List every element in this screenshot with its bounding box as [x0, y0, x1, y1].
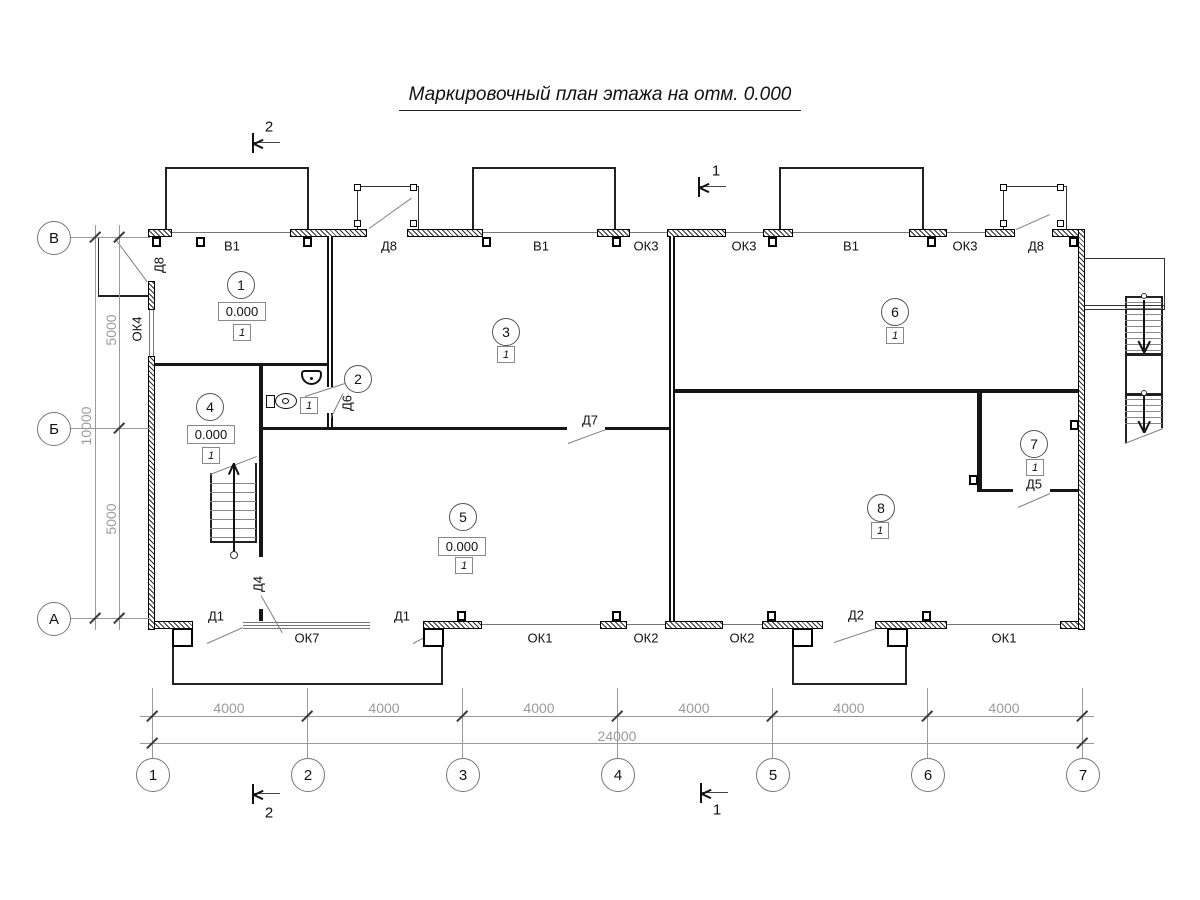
dimension-line: [95, 225, 96, 630]
opening-label: ОК7: [295, 631, 320, 646]
section-arrow-icon: [702, 793, 712, 799]
sink-icon: [310, 377, 313, 380]
finish-type-box: 1: [233, 324, 251, 341]
finish-type: 1: [877, 525, 883, 537]
interior-wall: [327, 236, 333, 387]
interior-wall: [675, 389, 1078, 393]
window-line: [483, 232, 597, 233]
axis-circle: 4: [601, 758, 635, 792]
room-number-circle: 4: [196, 393, 224, 421]
dim-label: 5000: [103, 503, 119, 534]
porch-line: [172, 683, 443, 685]
landing-line: [1085, 258, 1165, 259]
porch-pillar: [172, 628, 193, 647]
opening-label: ОК1: [528, 631, 553, 646]
stair-edge: [1161, 296, 1163, 428]
porch-post: [354, 220, 361, 227]
interior-wall: [155, 363, 332, 366]
window-line: [172, 232, 290, 233]
porch-line: [172, 647, 174, 685]
opening-label: ОК3: [634, 239, 659, 254]
room-number-circle: 6: [881, 298, 909, 326]
exterior-wall-pier: [597, 229, 630, 237]
dim-label: 4000: [368, 700, 399, 716]
axis-number: 7: [1079, 767, 1087, 784]
opening-label: Д8: [152, 257, 167, 273]
dim-label: 4000: [988, 700, 1019, 716]
extension-line: [307, 688, 308, 758]
interior-wall: [259, 366, 263, 557]
canopy-outline: [779, 167, 924, 232]
elevation-value: 0.000: [195, 427, 228, 442]
room-number: 7: [1030, 436, 1038, 452]
exterior-wall-pier: [985, 229, 1015, 237]
axis-circle: 3: [446, 758, 480, 792]
interior-wall-stub: [259, 609, 263, 621]
axis-number: 2: [304, 767, 312, 784]
porch-post: [1000, 220, 1007, 227]
dim-label: 10000: [78, 407, 94, 446]
opening-label: В1: [843, 239, 859, 254]
toilet-icon: [266, 395, 275, 408]
axis-letter: Б: [49, 421, 59, 438]
room-number: 8: [877, 500, 885, 516]
finish-type: 1: [503, 349, 509, 361]
finish-type-box: 1: [202, 447, 220, 464]
section-number: 1: [712, 163, 720, 180]
interior-wall: [605, 427, 669, 430]
jamb-tick: [927, 237, 936, 247]
opening-label: В1: [224, 239, 240, 254]
floor-plan-sheet: Маркировочный план этажа на отм. 0.000: [0, 0, 1200, 900]
porch-line: [905, 647, 907, 685]
room-number: 5: [459, 509, 467, 525]
room-number: 3: [502, 324, 510, 340]
room-number-circle: 1: [227, 271, 255, 299]
canopy-outline: [472, 167, 616, 232]
jamb-tick: [152, 237, 161, 247]
window-line: [947, 232, 985, 233]
stair-arrow-origin: [230, 551, 238, 559]
room-number-circle: 3: [492, 318, 520, 346]
porch-line: [441, 647, 443, 685]
extension-line: [69, 237, 150, 238]
opening-label: Д4: [251, 576, 266, 592]
jamb-tick: [1069, 237, 1078, 247]
interior-wall: [977, 489, 1013, 492]
finish-type: 1: [1032, 462, 1038, 474]
jamb-tick: [767, 611, 776, 621]
finish-type-box: 1: [497, 346, 515, 363]
section-arrow-icon: [254, 143, 264, 149]
axis-number: 1: [149, 767, 157, 784]
opening-label: ОК2: [634, 631, 659, 646]
finish-type-box: 1: [871, 522, 889, 539]
opening-label: ОК1: [992, 631, 1017, 646]
opening-label: Д6: [340, 395, 355, 411]
finish-type: 1: [461, 560, 467, 572]
window-line: [630, 232, 667, 233]
stair-node: [1141, 390, 1147, 396]
elevation-box: 0.000: [438, 537, 486, 556]
extension-line: [772, 688, 773, 758]
room-number-circle: 8: [867, 494, 895, 522]
exterior-wall-pier: [909, 229, 947, 237]
stair-node: [1141, 293, 1147, 299]
dim-label: 4000: [678, 700, 709, 716]
porch-post: [1057, 184, 1064, 191]
exterior-wall-pier: [148, 281, 155, 310]
axis-number: 4: [614, 767, 622, 784]
room-number: 6: [891, 304, 899, 320]
exterior-wall-pier: [1078, 229, 1085, 630]
jamb-tick: [482, 237, 491, 247]
dim-label: 4000: [523, 700, 554, 716]
finish-type-box: 1: [300, 397, 318, 414]
porch-line: [792, 647, 794, 685]
room-number: 4: [206, 399, 214, 415]
jamb-tick: [969, 475, 978, 485]
opening-label: Д8: [1028, 239, 1044, 254]
stair-direction-arrow: [233, 463, 235, 556]
axis-circle: 5: [756, 758, 790, 792]
window-line: [482, 624, 600, 625]
finish-type: 1: [306, 400, 312, 412]
opening-label: Д1: [394, 609, 410, 624]
finish-type-box: 1: [455, 557, 473, 574]
elevation-box: 0.000: [218, 302, 266, 321]
porch-pillar: [887, 628, 908, 647]
exterior-wall-pier: [600, 621, 627, 629]
axis-circle: 2: [291, 758, 325, 792]
jamb-tick: [457, 611, 466, 621]
finish-type: 1: [892, 330, 898, 342]
opening-label: Д7: [582, 413, 598, 428]
exterior-wall-pier: [148, 229, 172, 237]
extension-line: [69, 618, 150, 619]
window-line: [723, 624, 762, 625]
opening-label: Д2: [848, 608, 864, 623]
west-porch-line: [98, 295, 148, 297]
west-porch-line: [98, 237, 99, 297]
room-number: 1: [237, 277, 245, 293]
axis-number: 5: [769, 767, 777, 784]
opening-label: ОК4: [130, 317, 145, 342]
jamb-tick: [768, 237, 777, 247]
dim-label: 4000: [833, 700, 864, 716]
porch-post: [410, 184, 417, 191]
elevation-value: 0.000: [226, 304, 259, 319]
window-line: [153, 310, 154, 356]
opening-label: ОК2: [730, 631, 755, 646]
stair-landing-edge: [1125, 353, 1163, 356]
canopy-outline: [165, 167, 309, 232]
exterior-wall-pier: [148, 356, 155, 630]
jamb-tick: [612, 237, 621, 247]
jamb-tick: [612, 611, 621, 621]
stair-edge: [255, 463, 257, 543]
door-leaf: [834, 628, 876, 643]
axis-number: 6: [924, 767, 932, 784]
opening-label: ОК3: [953, 239, 978, 254]
room-number: 2: [354, 371, 362, 387]
elevation-value: 0.000: [446, 539, 479, 554]
finish-type-box: 1: [1026, 459, 1044, 476]
room-number-circle: 2: [344, 365, 372, 393]
jamb-tick: [303, 237, 312, 247]
drawing-title: Маркировочный план этажа на отм. 0.000: [399, 84, 802, 111]
porch-post: [354, 184, 361, 191]
window-line: [793, 232, 909, 233]
section-number: 1: [713, 802, 721, 819]
finish-type: 1: [239, 327, 245, 339]
finish-type-box: 1: [886, 327, 904, 344]
opening-label: Д8: [381, 239, 397, 254]
door-leaf: [568, 429, 606, 444]
elevation-box: 0.000: [187, 425, 235, 444]
porch-post: [410, 220, 417, 227]
door-leaf: [207, 627, 243, 644]
axis-circle: В: [37, 221, 71, 255]
opening-label: Д5: [1026, 477, 1042, 492]
opening-label: В1: [533, 239, 549, 254]
window-line: [947, 624, 1060, 625]
stair-direction-arrow: [1143, 396, 1145, 430]
dim-label: 4000: [213, 700, 244, 716]
room-number-circle: 5: [449, 503, 477, 531]
extension-line: [152, 688, 153, 758]
exterior-wall-pier: [407, 229, 483, 237]
axis-circle: 1: [136, 758, 170, 792]
landing-line: [1164, 258, 1165, 310]
drawing-title-row: Маркировочный план этажа на отм. 0.000: [0, 84, 1200, 111]
section-arrow-icon: [700, 187, 710, 193]
room-number-circle: 7: [1020, 430, 1048, 458]
jamb-tick: [1070, 420, 1079, 430]
exterior-wall-pier: [763, 229, 793, 237]
axis-letter: В: [49, 230, 59, 247]
opening-label: ОК3: [732, 239, 757, 254]
extension-line: [617, 688, 618, 758]
finish-type: 1: [208, 450, 214, 462]
porch-post: [1000, 184, 1007, 191]
jamb-tick: [196, 237, 205, 247]
axis-number: 3: [459, 767, 467, 784]
opening-label: Д1: [208, 609, 224, 624]
interior-wall: [259, 427, 567, 430]
window-sill-band: [243, 622, 370, 623]
porch-line: [792, 683, 907, 685]
axis-circle: 7: [1066, 758, 1100, 792]
porch-pillar: [792, 628, 813, 647]
axis-letter: А: [49, 611, 59, 628]
exterior-wall-pier: [667, 229, 726, 237]
window-line: [149, 310, 150, 356]
extension-line: [462, 688, 463, 758]
exterior-wall-pier: [665, 621, 723, 629]
interior-wall: [1050, 489, 1078, 492]
dim-label: 5000: [103, 314, 119, 345]
dim-label: 24000: [598, 728, 637, 744]
axis-circle: А: [37, 602, 71, 636]
axis-circle: 6: [911, 758, 945, 792]
toilet-icon: [282, 398, 289, 404]
jamb-tick: [922, 611, 931, 621]
extension-line: [927, 688, 928, 758]
window-sill-band: [243, 625, 370, 626]
window-sill-band: [243, 628, 370, 629]
section-number: 2: [265, 805, 273, 822]
door-leaf: [1018, 493, 1050, 508]
stair-edge: [1125, 296, 1127, 443]
window-line: [726, 232, 763, 233]
axis-circle: Б: [37, 412, 71, 446]
section-arrow-icon: [254, 794, 264, 800]
extension-line: [1082, 688, 1083, 758]
porch-pillar: [423, 628, 444, 647]
stair-direction-arrow: [1143, 300, 1145, 350]
section-number: 2: [265, 119, 273, 136]
interior-wall: [669, 236, 675, 621]
exterior-wall-pier: [875, 621, 947, 629]
window-line: [627, 624, 665, 625]
porch-post: [1057, 220, 1064, 227]
